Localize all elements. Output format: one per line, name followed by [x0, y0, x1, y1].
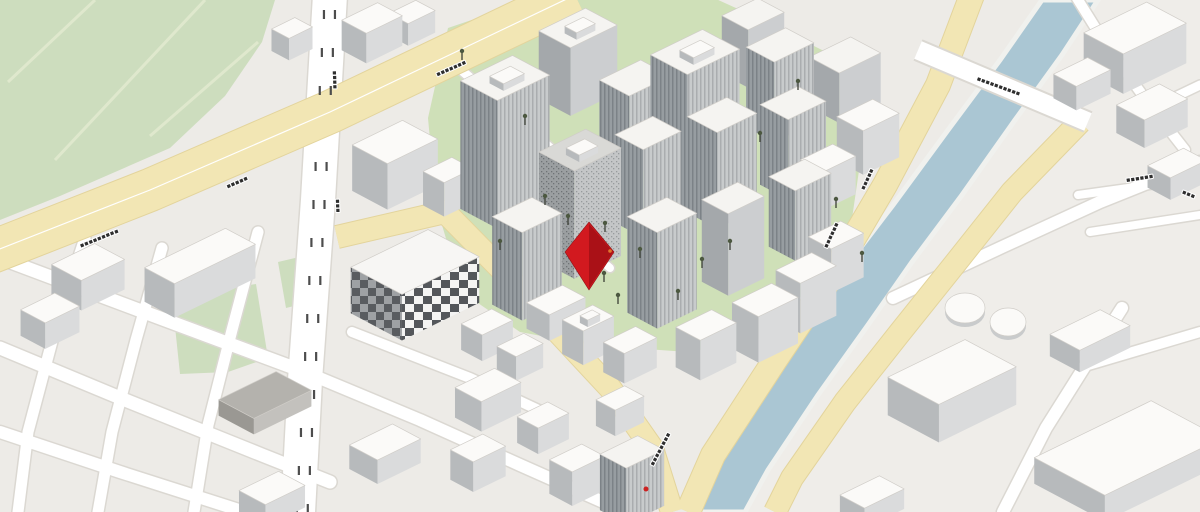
building-wall-sw [492, 217, 522, 321]
tree-icon [728, 239, 732, 243]
lane-dash [314, 162, 316, 171]
lane-dash [321, 48, 323, 57]
building-wall-sw [702, 200, 728, 296]
building-wall-sw [627, 217, 657, 329]
lane-dash [313, 390, 315, 399]
building [627, 197, 697, 328]
tree-icon [796, 79, 800, 83]
lane-dash [311, 428, 313, 437]
map-label-avenue-label-2: ▪▪▪ [334, 199, 342, 213]
tree-icon [603, 221, 607, 225]
building-roof [990, 308, 1026, 336]
building-roof [945, 293, 985, 323]
tree-icon [523, 114, 527, 118]
map-canvas[interactable]: ▪▪▪▪▪▪▪▪▪▪▪▪▪▪▪▪▪▪▪▪▪▪▪▪▪▪▪▪▪▪▪▪▪▪▪▪▪▪▪▪… [0, 0, 1200, 512]
lane-dash [307, 504, 309, 512]
building [702, 182, 764, 296]
lane-dash [309, 466, 311, 475]
lane-dash [304, 352, 306, 361]
building-wall-sw [769, 177, 795, 261]
lane-dash [306, 314, 308, 323]
lane-dash [323, 200, 325, 209]
poi-red-icon [644, 487, 649, 492]
map-label-avenue-label-1: ▪▪▪▪ [331, 71, 340, 90]
lane-dash [298, 466, 300, 475]
tree-icon [616, 293, 620, 297]
building-wall-se [657, 213, 697, 328]
lane-dash [323, 10, 325, 19]
lane-dash [317, 314, 319, 323]
building-wall-sw [460, 81, 497, 229]
tree-icon [700, 257, 704, 261]
lane-dash [334, 10, 336, 19]
pin-accent-dot [608, 249, 612, 253]
tree-icon [676, 289, 680, 293]
lane-dash [300, 428, 302, 437]
tree-icon [758, 131, 762, 135]
lane-dash [315, 352, 317, 361]
tree-icon [460, 49, 464, 53]
tree-icon [543, 194, 547, 198]
tree-icon [602, 271, 606, 275]
lane-dash [332, 48, 334, 57]
lane-dash [308, 276, 310, 285]
tree-icon [638, 247, 642, 251]
tree-icon [834, 197, 838, 201]
lane-dash [325, 162, 327, 171]
lane-dash [312, 200, 314, 209]
lane-dash [321, 238, 323, 247]
building [945, 293, 985, 327]
tree-icon [860, 251, 864, 255]
tree-icon [498, 239, 502, 243]
building [990, 308, 1026, 340]
lane-dash [319, 86, 321, 95]
lane-dash [319, 276, 321, 285]
tree-icon [566, 214, 570, 218]
map-3d-view[interactable]: ▪▪▪▪▪▪▪▪▪▪▪▪▪▪▪▪▪▪▪▪▪▪▪▪▪▪▪▪▪▪▪▪▪▪▪▪▪▪▪▪… [0, 0, 1200, 512]
lane-dash [310, 238, 312, 247]
